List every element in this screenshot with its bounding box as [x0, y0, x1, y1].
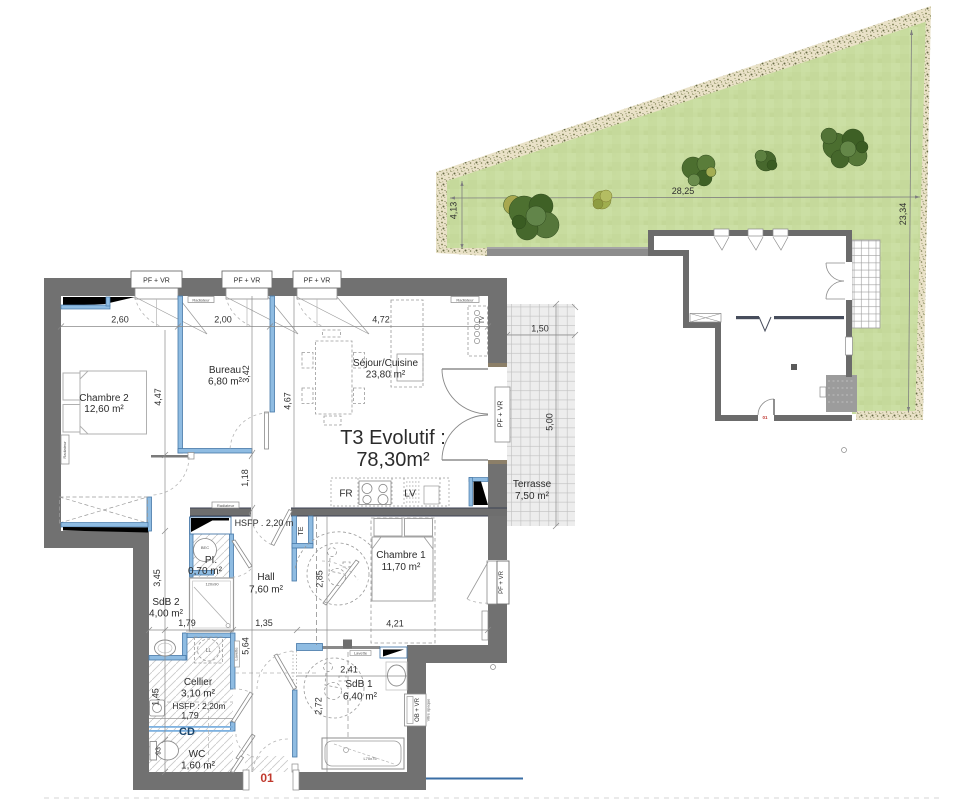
svg-text:1,79: 1,79: [181, 711, 199, 721]
svg-text:11,70 m²: 11,70 m²: [382, 562, 421, 573]
svg-text:FR: FR: [339, 489, 352, 500]
svg-text:PF + VR: PF + VR: [143, 278, 170, 285]
svg-text:Radiateur: Radiateur: [456, 297, 474, 302]
svg-text:TE: TE: [298, 526, 305, 535]
svg-text:Terrasse: Terrasse: [513, 479, 552, 490]
svg-text:CD: CD: [179, 726, 195, 738]
svg-text:1,18: 1,18: [240, 469, 250, 487]
svg-text:1,45: 1,45: [151, 688, 161, 706]
svg-text:Radiateur: Radiateur: [217, 503, 235, 508]
svg-text:1,60 m²: 1,60 m²: [181, 761, 216, 772]
svg-text:3,42: 3,42: [241, 365, 251, 383]
svg-text:6,40 m²: 6,40 m²: [343, 692, 378, 703]
svg-text:4,67: 4,67: [283, 392, 293, 410]
svg-text:SdB 2: SdB 2: [152, 597, 180, 608]
svg-text:78,30m²: 78,30m²: [356, 449, 430, 471]
svg-text:LV: LV: [404, 489, 416, 500]
svg-text:PF + VR: PF + VR: [499, 570, 505, 594]
svg-text:Chambre 2: Chambre 2: [79, 393, 129, 404]
svg-text:HSFP . 2,20 m: HSFP . 2,20 m: [235, 518, 294, 528]
svg-text:3,10 m²: 3,10 m²: [181, 689, 216, 700]
svg-text:SdB 1: SdB 1: [345, 679, 373, 690]
svg-text:LL: LL: [206, 648, 212, 654]
svg-text:WC: WC: [189, 749, 206, 760]
svg-text:4,13: 4,13: [449, 202, 459, 220]
svg-text:HSFP : 2,20m: HSFP : 2,20m: [172, 701, 225, 711]
svg-text:4,47: 4,47: [153, 388, 163, 406]
svg-text:4,72: 4,72: [372, 315, 390, 325]
svg-text:5,64: 5,64: [241, 637, 251, 655]
svg-text:2,85: 2,85: [315, 570, 325, 588]
svg-text:Lavette: Lavette: [354, 651, 368, 656]
svg-text:Radiateur: Radiateur: [192, 297, 210, 302]
svg-text:Radiateur: Radiateur: [62, 441, 67, 459]
svg-text:Cellier: Cellier: [184, 677, 213, 688]
svg-text:0,70 m²: 0,70 m²: [188, 566, 223, 577]
svg-text:Hall: Hall: [257, 572, 274, 583]
svg-text:6,80 m²: 6,80 m²: [208, 377, 243, 388]
svg-text:OB + VR: OB + VR: [415, 697, 421, 722]
svg-text:2,72: 2,72: [314, 697, 324, 715]
svg-text:TV: TV: [480, 316, 486, 324]
svg-text:5,00: 5,00: [545, 413, 555, 431]
svg-text:23,80 m²: 23,80 m²: [366, 370, 406, 381]
svg-text:28,25: 28,25: [672, 186, 695, 196]
svg-text:2,60: 2,60: [111, 315, 129, 325]
svg-text:7,50 m²: 7,50 m²: [515, 491, 550, 502]
svg-text:Séjour/Cuisine: Séjour/Cuisine: [353, 358, 418, 369]
svg-text:Chambre 1: Chambre 1: [376, 550, 426, 561]
svg-text:1,35: 1,35: [255, 618, 273, 628]
svg-text:L70x75: L70x75: [363, 756, 377, 761]
svg-text:4,21: 4,21: [386, 619, 404, 629]
svg-text:01: 01: [762, 415, 768, 420]
svg-text:BEC: BEC: [201, 545, 209, 550]
svg-text:7,60 m²: 7,60 m²: [249, 585, 284, 596]
svg-text:1,50: 1,50: [531, 324, 549, 334]
svg-text:2,00: 2,00: [214, 315, 232, 325]
svg-text:Bureau: Bureau: [209, 365, 241, 376]
svg-text:Lavette: Lavette: [234, 647, 239, 661]
svg-text:120x90: 120x90: [205, 582, 219, 587]
svg-text:23,34: 23,34: [898, 203, 908, 226]
svg-text:93: 93: [156, 747, 163, 755]
svg-text:PF + VR: PF + VR: [304, 278, 331, 285]
svg-text:2,41: 2,41: [340, 665, 358, 675]
svg-text:Vitre opaque: Vitre opaque: [426, 698, 431, 721]
svg-text:PI.: PI.: [205, 555, 217, 566]
svg-text:1,79: 1,79: [178, 618, 196, 628]
svg-text:3,45: 3,45: [152, 569, 162, 587]
svg-text:PF + VR: PF + VR: [498, 401, 505, 428]
svg-text:T3 Evolutif :: T3 Evolutif :: [340, 427, 446, 449]
svg-text:4,00 m²: 4,00 m²: [149, 609, 184, 620]
svg-text:12,60 m²: 12,60 m²: [84, 404, 124, 415]
svg-text:01: 01: [260, 771, 274, 785]
svg-text:PF + VR: PF + VR: [234, 278, 261, 285]
